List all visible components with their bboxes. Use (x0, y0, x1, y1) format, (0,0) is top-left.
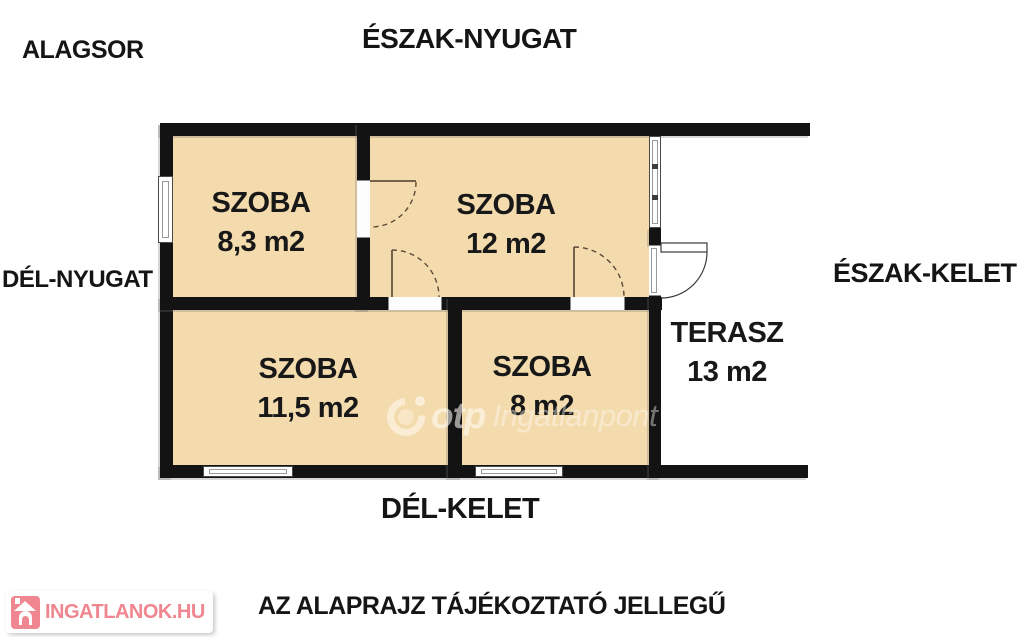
floor-label: ALAGSOR (22, 36, 144, 65)
room-area: 8,3 m2 (212, 223, 311, 262)
room-area: 8 m2 (493, 387, 592, 426)
compass-north-east: ÉSZAK-KELET (833, 258, 1017, 289)
house-icon (11, 596, 40, 629)
floorplan-image: ALAGSOR ÉSZAK-NYUGAT DÉL-NYUGAT ÉSZAK-KE… (0, 0, 1024, 637)
wall-right-terrace (649, 296, 661, 478)
room-name: SZOBA (457, 186, 556, 225)
door-opening-room2-room4 (570, 297, 625, 310)
terrace-door-leaf (661, 243, 707, 252)
door-opening-terrace (649, 245, 661, 296)
ingatlanok-logo-text: INGATLANOK.HU (45, 601, 205, 624)
wall-top (160, 123, 810, 136)
wall-room3-room4 (448, 297, 462, 478)
compass-south-east: DÉL-KELET (381, 493, 539, 526)
terrace-door-swing-arc (661, 252, 707, 298)
compass-south-west: DÉL-NYUGAT (2, 266, 153, 294)
room-name: SZOBA (212, 184, 311, 223)
room-name: SZOBA (493, 348, 592, 387)
window-bottom-2 (475, 466, 563, 477)
room-label-szoba-12: SZOBA 12 m2 (457, 186, 556, 264)
wall-right-segment (649, 228, 661, 245)
room-label-szoba-8-3: SZOBA 8,3 m2 (212, 184, 311, 262)
ingatlanok-logo: INGATLANOK.HU (6, 591, 213, 633)
room-area: 11,5 m2 (257, 389, 358, 428)
window-bottom-1 (203, 466, 293, 477)
room-area: 12 m2 (457, 225, 556, 264)
disclaimer-text: AZ ALAPRAJZ TÁJÉKOZTATÓ JELLEGŰ (258, 592, 725, 621)
door-opening-room2-room3 (388, 297, 442, 310)
room-label-szoba-8: SZOBA 8 m2 (493, 348, 592, 426)
room-name: TERASZ (671, 314, 784, 353)
room-name: SZOBA (257, 350, 358, 389)
room-label-szoba-11-5: SZOBA 11,5 m2 (257, 350, 358, 428)
room-label-terasz: TERASZ 13 m2 (671, 314, 784, 392)
compass-north-west: ÉSZAK-NYUGAT (362, 23, 576, 55)
window-glass-wall (649, 136, 661, 228)
room-area: 13 m2 (671, 353, 784, 392)
door-opening-room1-room2 (357, 180, 370, 238)
window-left (158, 176, 173, 243)
